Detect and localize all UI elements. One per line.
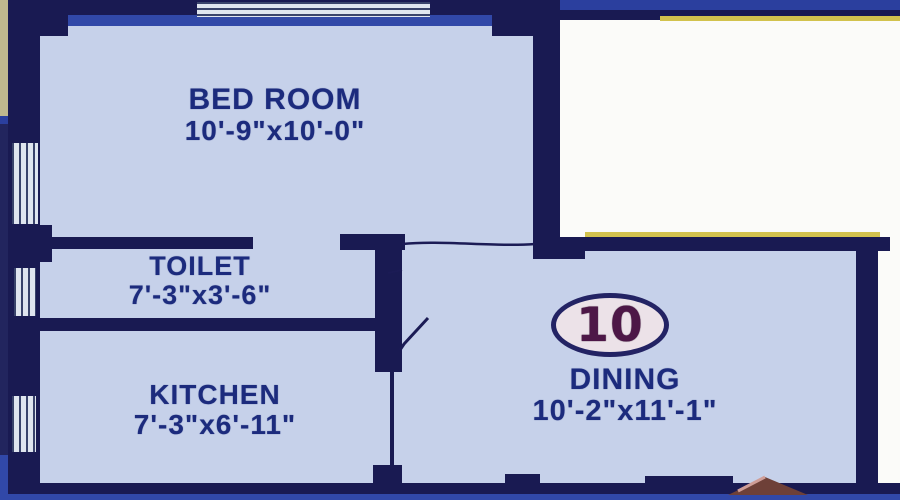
toilet-dims: 7'-3"x3'-6" xyxy=(40,281,360,310)
room-label-dining: DINING 10'-2"x11'-1" xyxy=(430,364,820,428)
room-label-toilet: TOILET 7'-3"x3'-6" xyxy=(40,252,360,310)
unit-number: 10 xyxy=(576,298,643,353)
kitchen-name: KITCHEN xyxy=(50,380,380,410)
dining-name: DINING xyxy=(430,364,820,396)
room-label-kitchen: KITCHEN 7'-3"x6'-11" xyxy=(50,380,380,440)
toilet-name: TOILET xyxy=(40,252,360,281)
dining-dims: 10'-2"x11'-1" xyxy=(430,396,820,427)
floor-plan: 10 BED ROOM 10'-9"x10'-0" TOILET 7'-3"x3… xyxy=(0,0,900,500)
kitchen-dims: 7'-3"x6'-11" xyxy=(50,410,380,440)
bedroom-name: BED ROOM xyxy=(60,84,490,116)
unit-number-badge: 10 xyxy=(551,293,669,357)
room-label-bedroom: BED ROOM 10'-9"x10'-0" xyxy=(60,84,490,147)
bedroom-dims: 10'-9"x10'-0" xyxy=(60,116,490,146)
